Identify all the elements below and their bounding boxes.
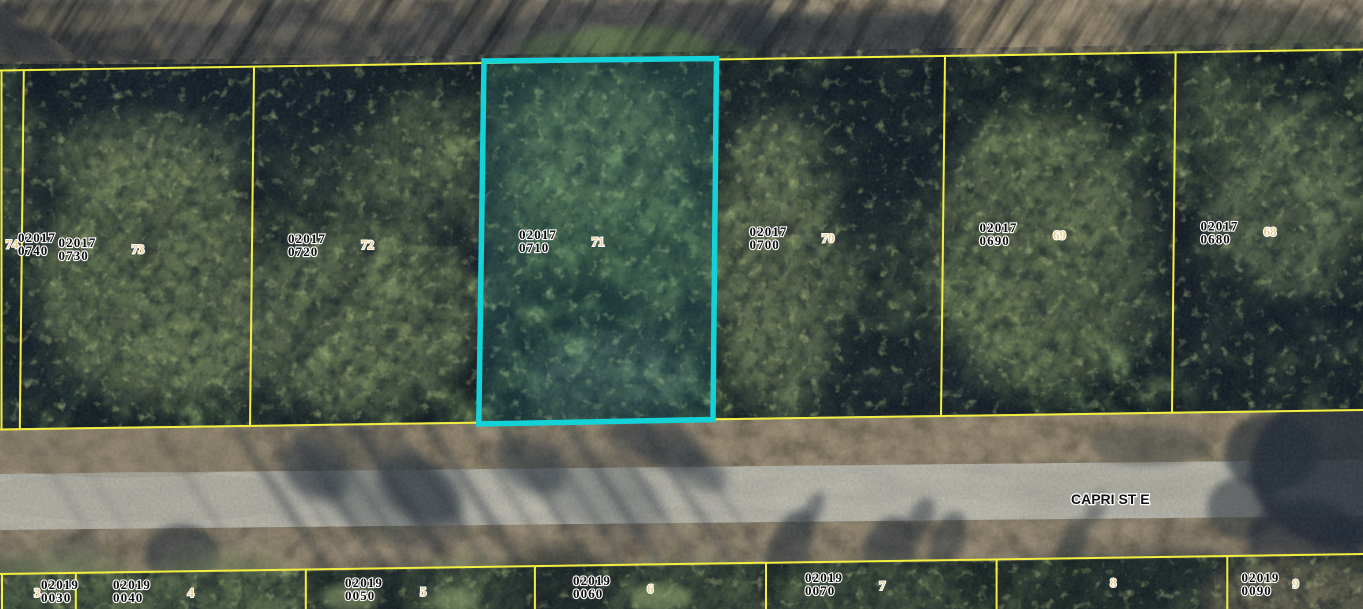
- svg-text:0030: 0030: [41, 590, 71, 605]
- svg-text:69: 69: [1053, 228, 1067, 243]
- svg-text:0710: 0710: [519, 240, 549, 255]
- svg-text:0740: 0740: [18, 243, 48, 258]
- svg-text:0700: 0700: [750, 237, 780, 252]
- svg-text:3: 3: [34, 585, 41, 600]
- svg-text:6: 6: [647, 581, 654, 596]
- svg-text:8: 8: [1110, 575, 1117, 590]
- svg-text:0690: 0690: [980, 233, 1010, 248]
- svg-text:5: 5: [420, 584, 427, 599]
- svg-text:9: 9: [1293, 576, 1300, 591]
- svg-text:0050: 0050: [345, 588, 375, 603]
- svg-text:72: 72: [361, 237, 374, 252]
- svg-text:74: 74: [6, 237, 20, 252]
- svg-text:0090: 0090: [1242, 583, 1272, 598]
- svg-text:0730: 0730: [59, 248, 89, 263]
- svg-text:0680: 0680: [1201, 232, 1231, 247]
- svg-text:0060: 0060: [573, 586, 603, 601]
- svg-text:0070: 0070: [805, 583, 835, 598]
- svg-text:0720: 0720: [288, 244, 318, 259]
- svg-text:68: 68: [1264, 224, 1278, 239]
- svg-text:CAPRI ST E: CAPRI ST E: [1071, 491, 1150, 507]
- svg-text:0040: 0040: [113, 590, 143, 605]
- svg-text:70: 70: [822, 231, 835, 246]
- svg-text:71: 71: [592, 234, 605, 249]
- svg-text:7: 7: [879, 578, 886, 593]
- svg-text:73: 73: [132, 242, 146, 257]
- svg-text:4: 4: [188, 585, 195, 600]
